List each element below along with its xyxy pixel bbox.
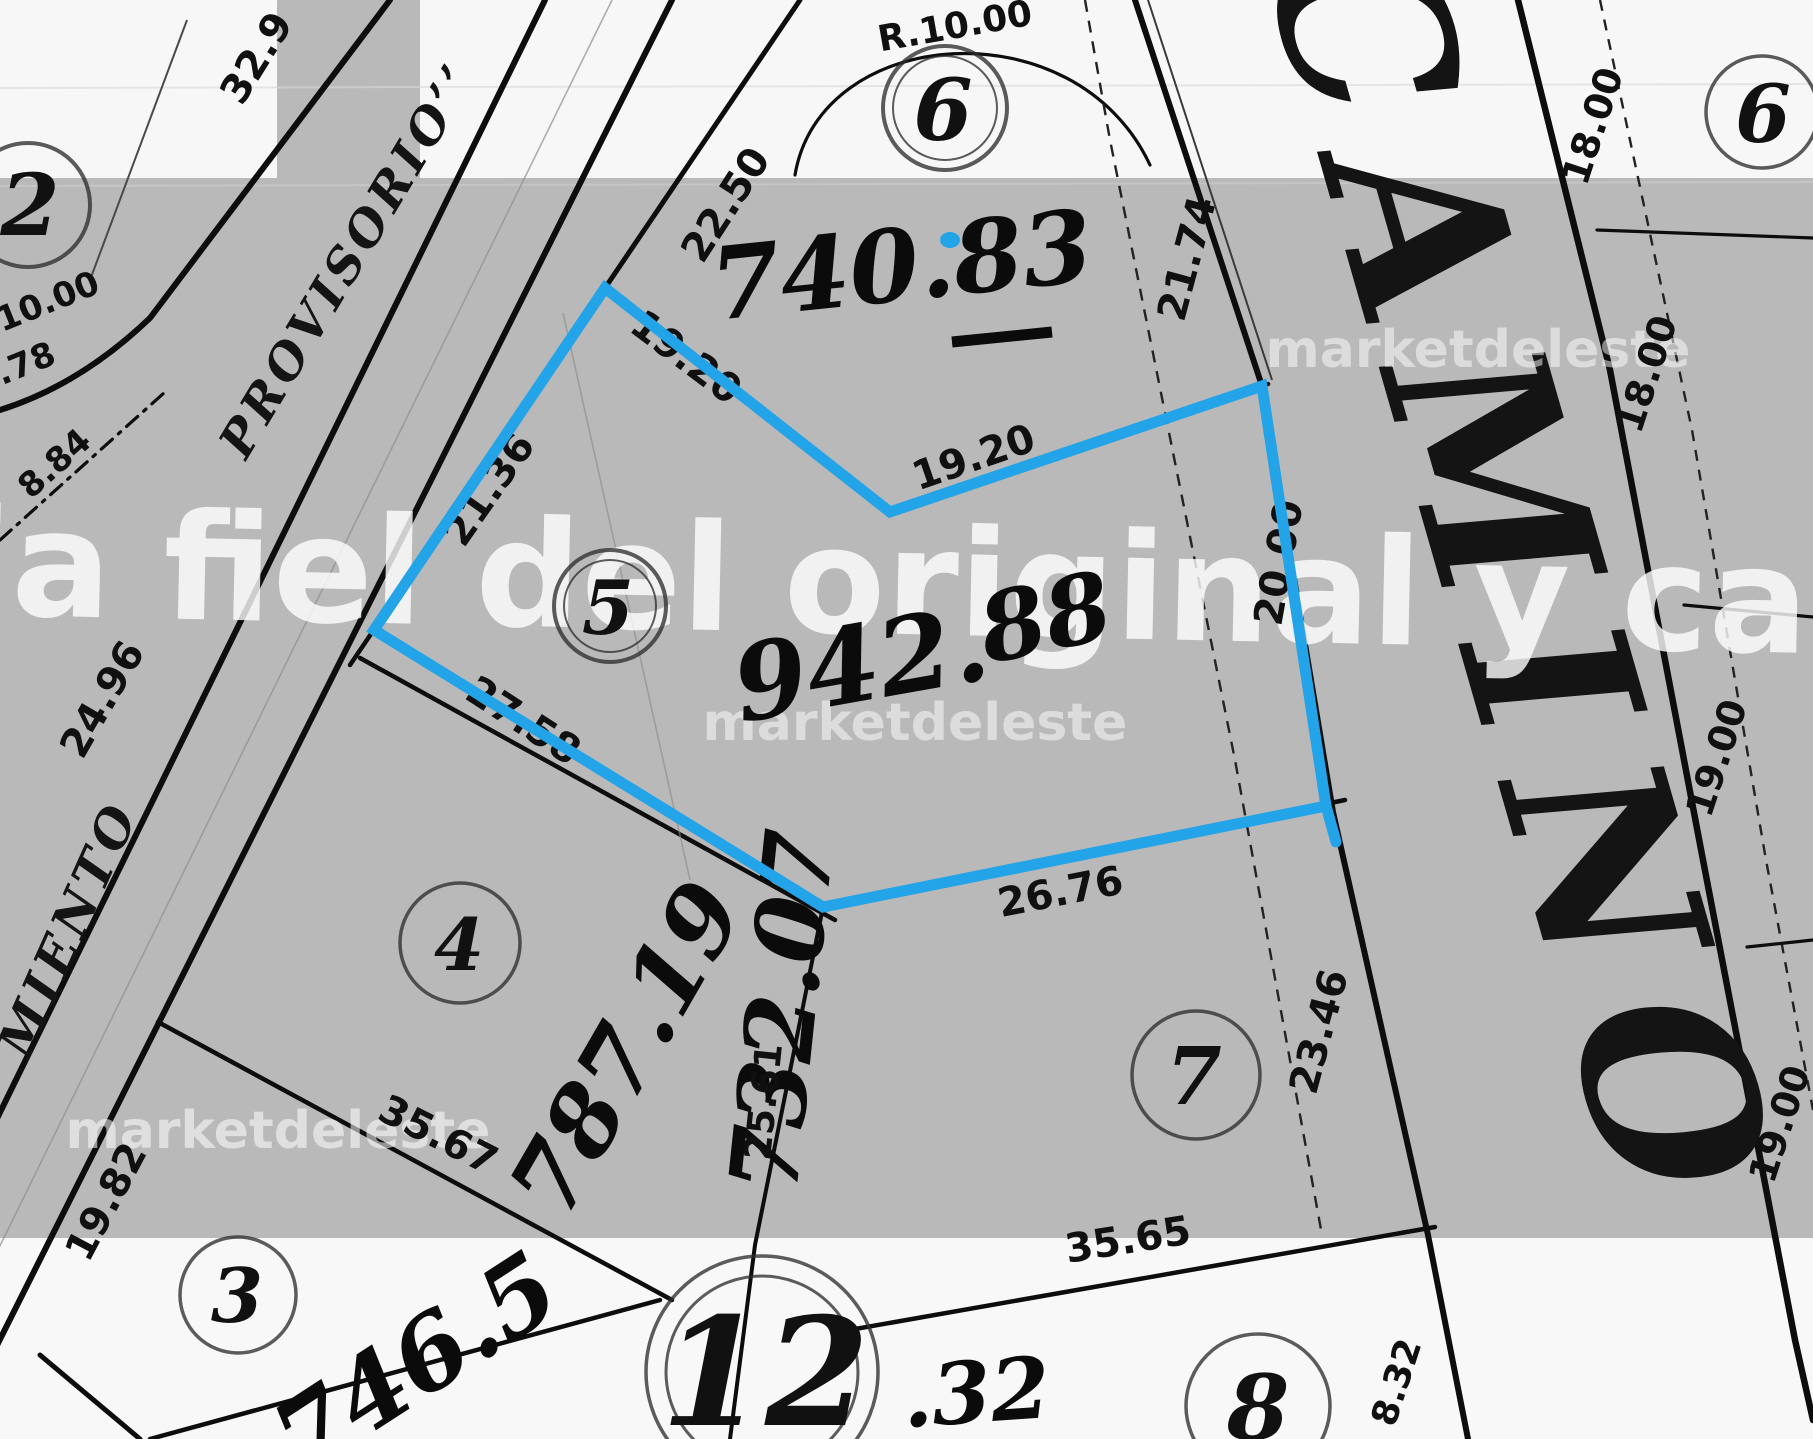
lot2-number: 2: [0, 156, 60, 256]
lot6-right-number: 6: [1735, 67, 1791, 161]
lot12-number: 12: [661, 1285, 870, 1439]
area-bottom-partial: .32: [899, 1338, 1054, 1439]
cadastral-plan-scan: CAMINO PROVISORIO’’ MIENTO ia fiel del o…: [0, 0, 1813, 1439]
lot8-number: 8: [1226, 1355, 1290, 1439]
lot4-number: 4: [434, 902, 484, 987]
lot5-number: 5: [582, 564, 634, 652]
lot3-number: 3: [211, 1252, 263, 1340]
blue-stray-dot: [940, 232, 960, 248]
lot6-top-number: 6: [913, 61, 972, 161]
plat-map-svg: CAMINO PROVISORIO’’ MIENTO ia fiel del o…: [0, 0, 1813, 1439]
lot7-number: 7: [1166, 1029, 1222, 1123]
